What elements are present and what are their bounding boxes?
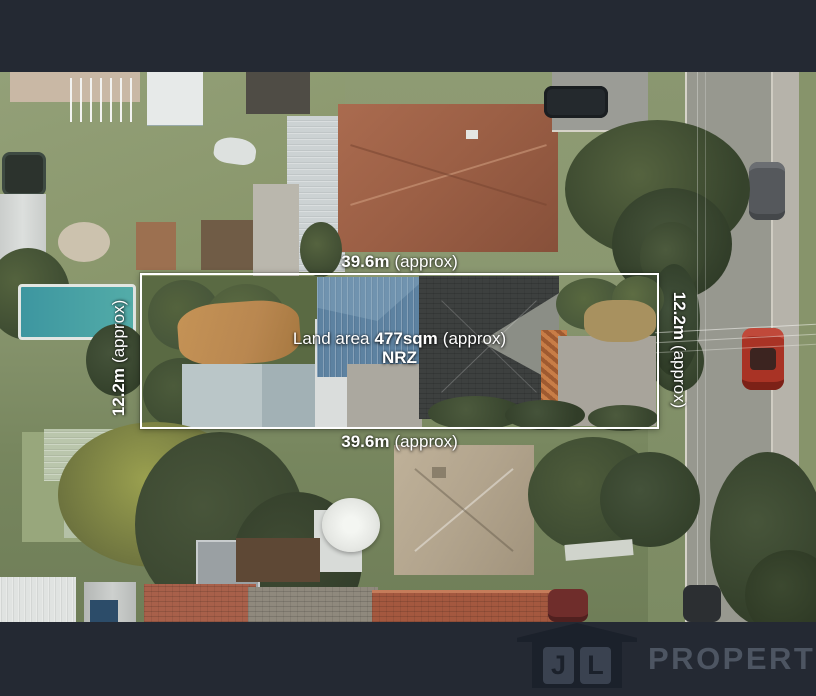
dry-patch	[584, 300, 656, 342]
car-red-windows	[750, 348, 776, 370]
shingle-roof-bottom	[248, 587, 378, 622]
logo-monogram-l: L	[580, 647, 611, 684]
rear-boundary-value: 39.6m	[341, 432, 389, 451]
car-maroon	[548, 589, 588, 622]
terracotta-roof-bottom	[372, 590, 562, 622]
car-dark-on-road	[683, 585, 721, 622]
dark-pergola	[246, 72, 310, 114]
power-line	[705, 72, 706, 622]
listing-image: 39.6m(approx) 39.6m(approx) 12.2m(approx…	[0, 0, 816, 696]
driveway-concrete	[253, 184, 299, 278]
agency-logo-icon: J L	[517, 623, 637, 689]
brown-flat-roof	[236, 538, 320, 582]
chimney	[466, 130, 478, 139]
letterbox-top	[0, 0, 816, 72]
tree	[86, 324, 148, 396]
white-roofs-bottom-left	[0, 577, 76, 622]
blue-corrugated-roof	[317, 277, 427, 377]
front-boundary-approx: (approx)	[394, 252, 457, 271]
courtyard-concrete	[347, 364, 422, 428]
white-fence	[70, 78, 132, 122]
agency-wordmark: PROPERTY	[648, 641, 816, 677]
logo-roof-shape	[517, 623, 637, 642]
garden-circle-path	[58, 222, 110, 262]
white-umbrella	[322, 498, 380, 552]
garden-bed	[300, 222, 342, 277]
white-shed	[147, 72, 203, 126]
terracotta-roof-bottom	[144, 584, 256, 622]
tan-hip-roof	[394, 445, 534, 575]
car-parked-top	[544, 86, 608, 118]
terracotta-hip-roof	[338, 104, 558, 252]
rusty-shed	[136, 222, 176, 270]
tree	[600, 452, 700, 547]
logo-house-body: J L	[532, 642, 622, 688]
aerial-photo: 39.6m(approx) 39.6m(approx) 12.2m(approx…	[0, 72, 816, 622]
car-grey-on-road	[749, 162, 785, 220]
front-boundary-value: 39.6m	[341, 252, 389, 271]
garage-roof	[182, 364, 320, 427]
power-line	[697, 72, 698, 622]
tree	[505, 400, 585, 430]
blue-tarp	[90, 600, 118, 622]
tree	[588, 405, 658, 431]
chimney	[432, 467, 446, 478]
letterbox-bottom: J L PROPERTY	[0, 622, 816, 696]
logo-monogram-j: J	[543, 647, 574, 684]
trampoline	[2, 152, 46, 196]
blue-roof-highlight	[317, 277, 427, 321]
